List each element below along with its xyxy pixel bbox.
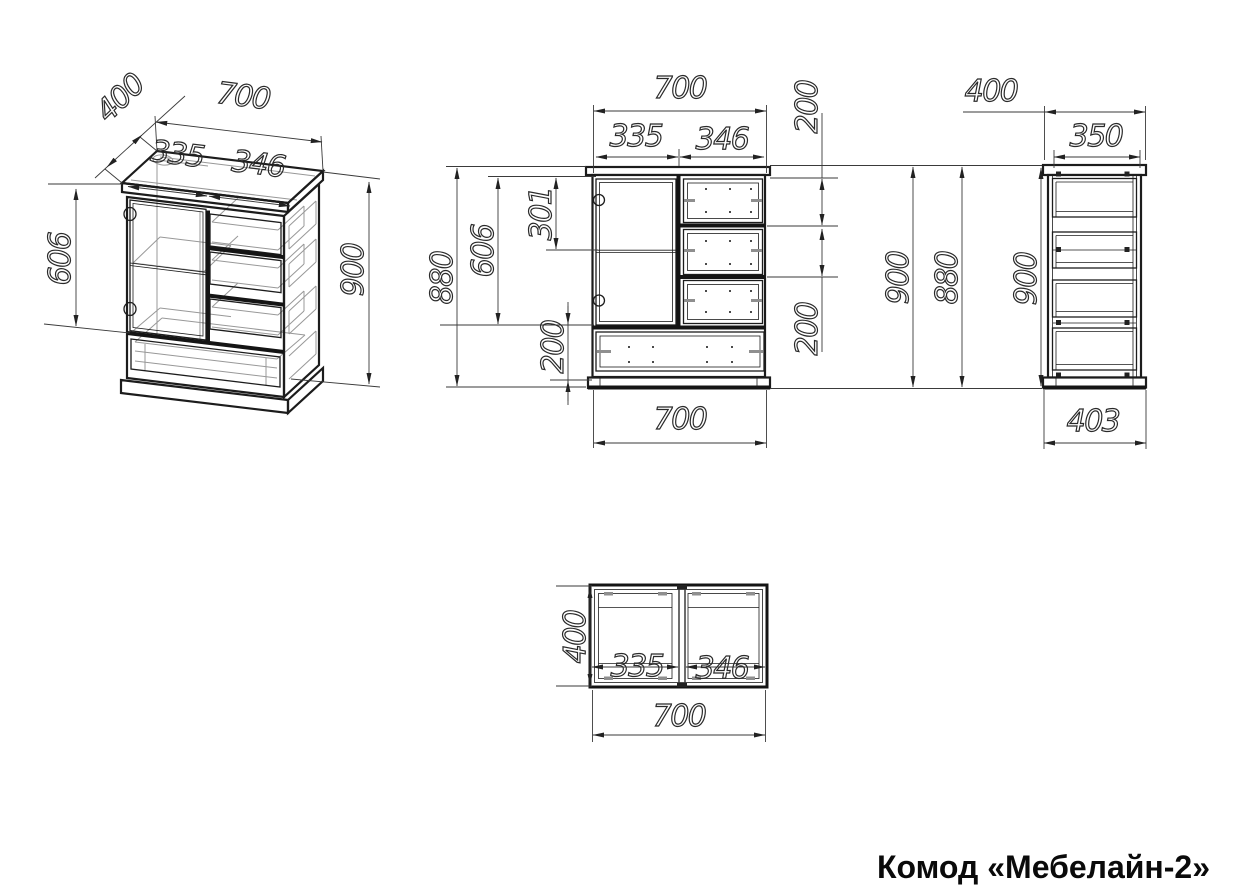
blueprint-drawing: 400 700 335 346 606 900 <box>0 0 1260 892</box>
front-view: 700 335 346 880 606 301 200 <box>425 71 1044 448</box>
top-dim-door-width: 335 <box>611 649 664 684</box>
side-dim-inner-depth: 350 <box>1070 119 1123 154</box>
front-dim-door-upper: 301 <box>524 188 559 241</box>
iso-dim-height: 900 <box>336 243 371 296</box>
side-dim-total-height: 900 <box>1009 252 1044 305</box>
front-dim-body-height: 880 <box>425 251 460 304</box>
front-dim-width: 700 <box>654 71 707 106</box>
front-dim-drawer1-height: 200 <box>790 80 825 133</box>
top-dim-depth: 400 <box>558 610 593 663</box>
iso-dim-width: 700 <box>215 76 272 117</box>
drawing-title: Комод «Мебелайн-2» <box>877 849 1210 886</box>
front-dim-drawer-width: 346 <box>696 122 749 157</box>
front-dim-door-height: 606 <box>466 224 501 277</box>
side-dim-base-depth: 403 <box>1067 404 1120 439</box>
front-dim-total-height: 900 <box>881 251 916 304</box>
top-dim-width: 700 <box>653 699 706 734</box>
front-structure <box>586 167 770 388</box>
top-view: 400 335 346 700 <box>556 585 767 742</box>
side-structure <box>1043 165 1146 388</box>
side-view: 400 350 403 <box>963 74 1146 449</box>
side-dim-depth: 400 <box>965 74 1018 109</box>
blueprint-page: 400 700 335 346 606 900 <box>0 0 1260 892</box>
top-dim-drawer-width: 346 <box>696 651 749 686</box>
isometric-view: 400 700 335 346 606 900 <box>43 67 380 413</box>
front-dim-bottom-drawer: 200 <box>536 320 571 373</box>
iso-dim-door-width: 335 <box>149 134 206 175</box>
side-dim-body-height: 880 <box>930 251 965 304</box>
iso-dim-door-height: 606 <box>43 232 78 285</box>
front-dim-door-width: 335 <box>610 119 663 154</box>
front-dim-drawer2-height: 200 <box>790 302 825 355</box>
iso-dim-depth: 400 <box>89 67 152 129</box>
front-dim-width-bottom: 700 <box>654 402 707 437</box>
iso-dim-drawer-width: 346 <box>230 144 287 185</box>
